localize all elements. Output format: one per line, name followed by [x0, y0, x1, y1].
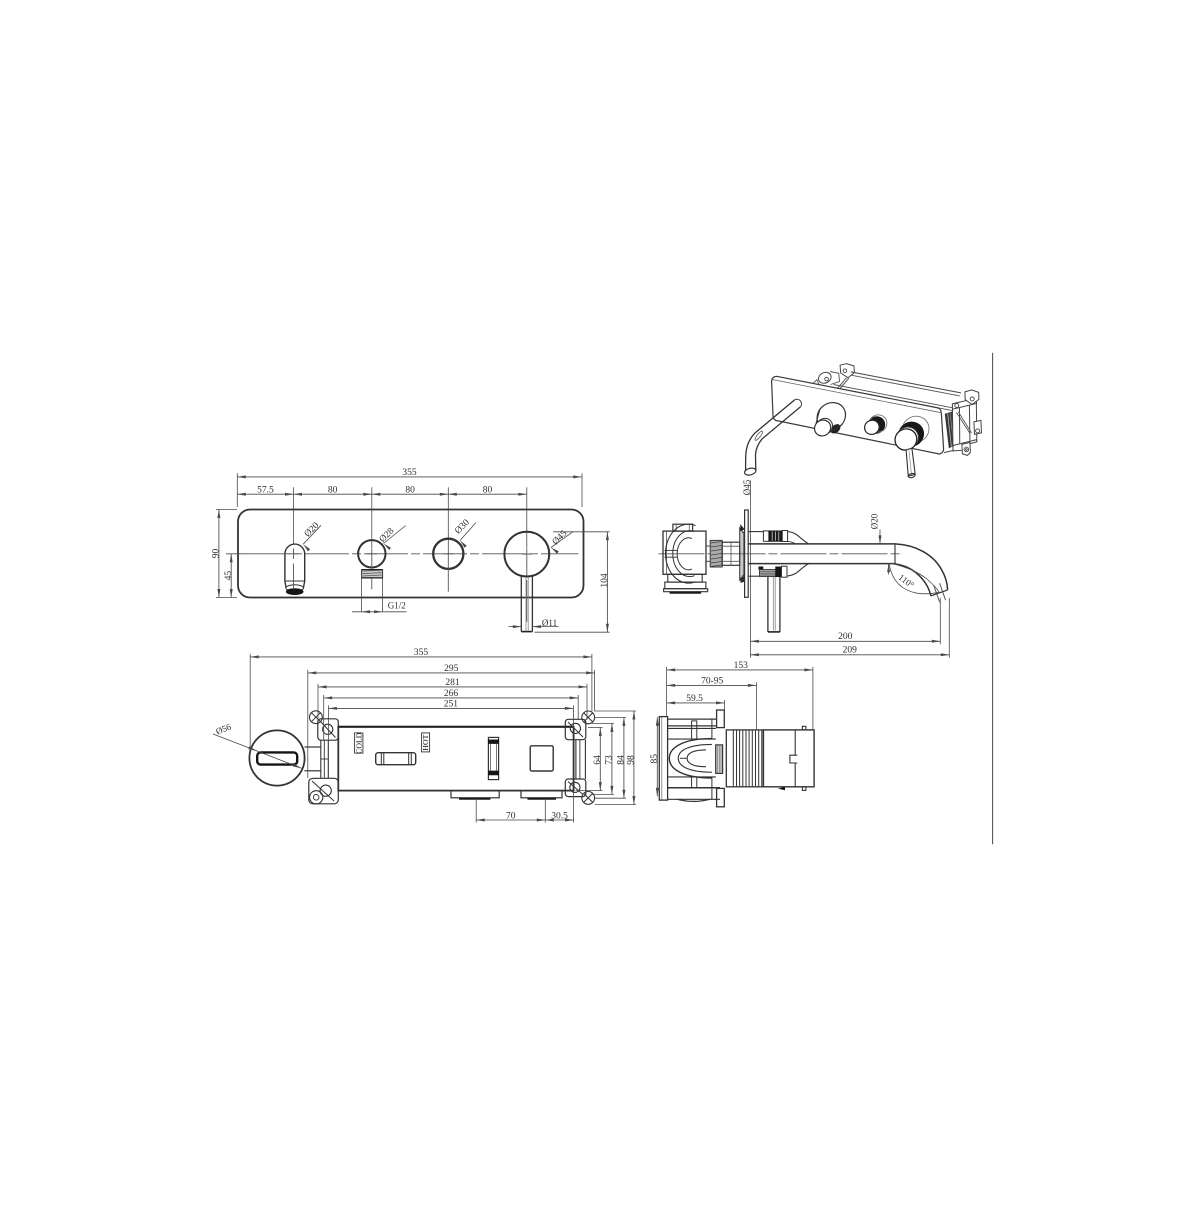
svg-text:COLD: COLD — [354, 732, 363, 754]
svg-text:64: 64 — [593, 755, 603, 765]
svg-text:200: 200 — [838, 632, 853, 642]
svg-text:85: 85 — [650, 754, 660, 764]
svg-text:98: 98 — [627, 755, 637, 765]
svg-text:281: 281 — [445, 678, 460, 688]
svg-text:80: 80 — [405, 486, 415, 496]
svg-text:45: 45 — [224, 571, 234, 581]
svg-text:251: 251 — [444, 700, 459, 710]
svg-text:Ø20: Ø20 — [870, 513, 880, 529]
svg-text:153: 153 — [734, 661, 749, 671]
svg-text:355: 355 — [402, 468, 417, 478]
svg-text:Ø45: Ø45 — [742, 479, 752, 495]
svg-text:Ø11: Ø11 — [542, 618, 557, 628]
svg-text:59.5: 59.5 — [686, 694, 703, 704]
svg-text:57.5: 57.5 — [257, 486, 274, 496]
svg-text:30.5: 30.5 — [551, 811, 568, 821]
svg-text:70-95: 70-95 — [701, 677, 723, 687]
svg-text:266: 266 — [444, 689, 459, 699]
svg-text:80: 80 — [328, 486, 338, 496]
svg-text:104: 104 — [600, 573, 610, 588]
svg-text:73: 73 — [605, 755, 615, 765]
svg-text:G1/2: G1/2 — [388, 601, 406, 611]
svg-text:295: 295 — [444, 664, 459, 674]
svg-text:80: 80 — [483, 486, 493, 496]
svg-text:209: 209 — [843, 645, 858, 655]
svg-text:355: 355 — [414, 648, 429, 658]
svg-text:70: 70 — [506, 811, 516, 821]
svg-text:HOT: HOT — [421, 734, 430, 750]
svg-text:90: 90 — [212, 549, 222, 559]
svg-text:84: 84 — [617, 755, 627, 765]
